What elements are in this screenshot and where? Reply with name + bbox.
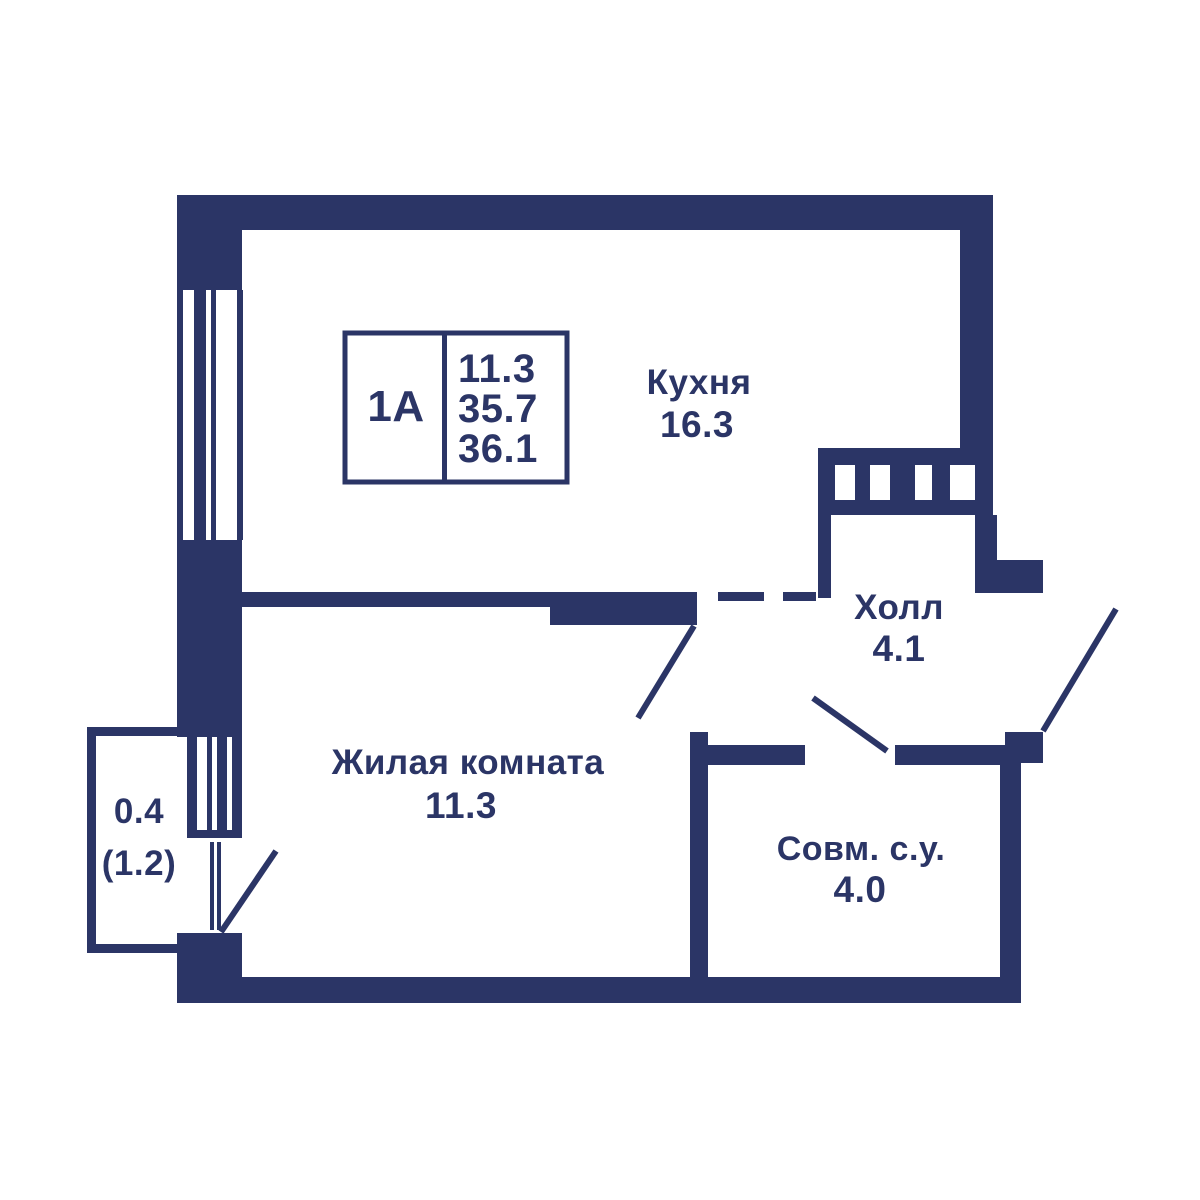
unit-label: 1A [367,382,424,431]
kitchen-window-glass-line [194,290,206,540]
balcony-door-frame-line [217,842,221,930]
kitchen-living-wall [242,592,550,607]
balcony-window-frame-line [232,737,242,832]
balcony-area: 0.4 [114,792,164,831]
living-room-area: 11.3 [425,785,497,826]
hall-right-wall-bar [975,515,997,560]
bathroom-top-wall-right [895,745,1007,765]
hall-label: Холл [854,588,944,627]
bathroom-left-wall [690,732,708,977]
floor-plan-drawing: 1A 11.3 35.7 36.1 Кухня 16.3 Холл 4.1 Жи… [0,0,1200,1200]
balcony-railing-left [87,727,96,953]
vent-shaft-hole [915,465,932,500]
floor-plan-page: 1A 11.3 35.7 36.1 Кухня 16.3 Холл 4.1 Жи… [0,0,1200,1200]
balcony-door-frame-line [210,842,214,930]
entrance-top-wall-block [975,560,1043,593]
balcony-window-glass-line [217,737,227,832]
entrance-door-jamb [1005,732,1043,763]
kitchen-living-wall-pier [550,592,697,625]
balcony-window-end-cap [187,830,242,838]
hall-area: 4.1 [873,628,926,669]
unit-value-total: 36.1 [458,427,538,471]
bathroom-label: Совм. с.у. [777,830,946,868]
kitchen-window-frame-line [177,290,183,540]
balcony-railing-bottom [87,944,191,953]
exterior-right-wall [960,195,993,448]
vent-shaft-hole [870,465,890,500]
left-wall-middle-segment [177,540,242,737]
living-room-label: Жилая комната [331,743,605,782]
left-wall-upper-segment [177,195,242,290]
kitchen-hall-opening-dash [718,592,764,601]
unit-value-room: 11.3 [458,347,536,391]
kitchen-area: 16.3 [660,404,734,445]
balcony-window-frame-line [187,737,197,832]
balcony-window-glass-line [207,737,212,832]
vent-shaft-left-bar [818,448,831,598]
unit-info-box-divider [442,333,447,482]
kitchen-window-frame-line [237,290,243,540]
bathroom-top-wall-left [690,745,805,765]
exterior-bottom-wall [242,977,1021,1003]
vent-shaft-hole [835,465,855,500]
unit-value-living: 35.7 [458,387,538,431]
balcony-railing-top [87,727,191,736]
kitchen-hall-opening-dash [783,592,816,601]
bathroom-area: 4.0 [834,869,887,910]
balcony-area-coefficient: (1.2) [102,844,176,883]
exterior-top-wall [177,195,993,230]
kitchen-window-glass-line [211,290,216,540]
bathroom-right-wall [1000,763,1021,1003]
vent-shaft-hole [950,465,975,500]
left-wall-lower-segment [177,933,242,1003]
kitchen-label: Кухня [647,363,752,402]
